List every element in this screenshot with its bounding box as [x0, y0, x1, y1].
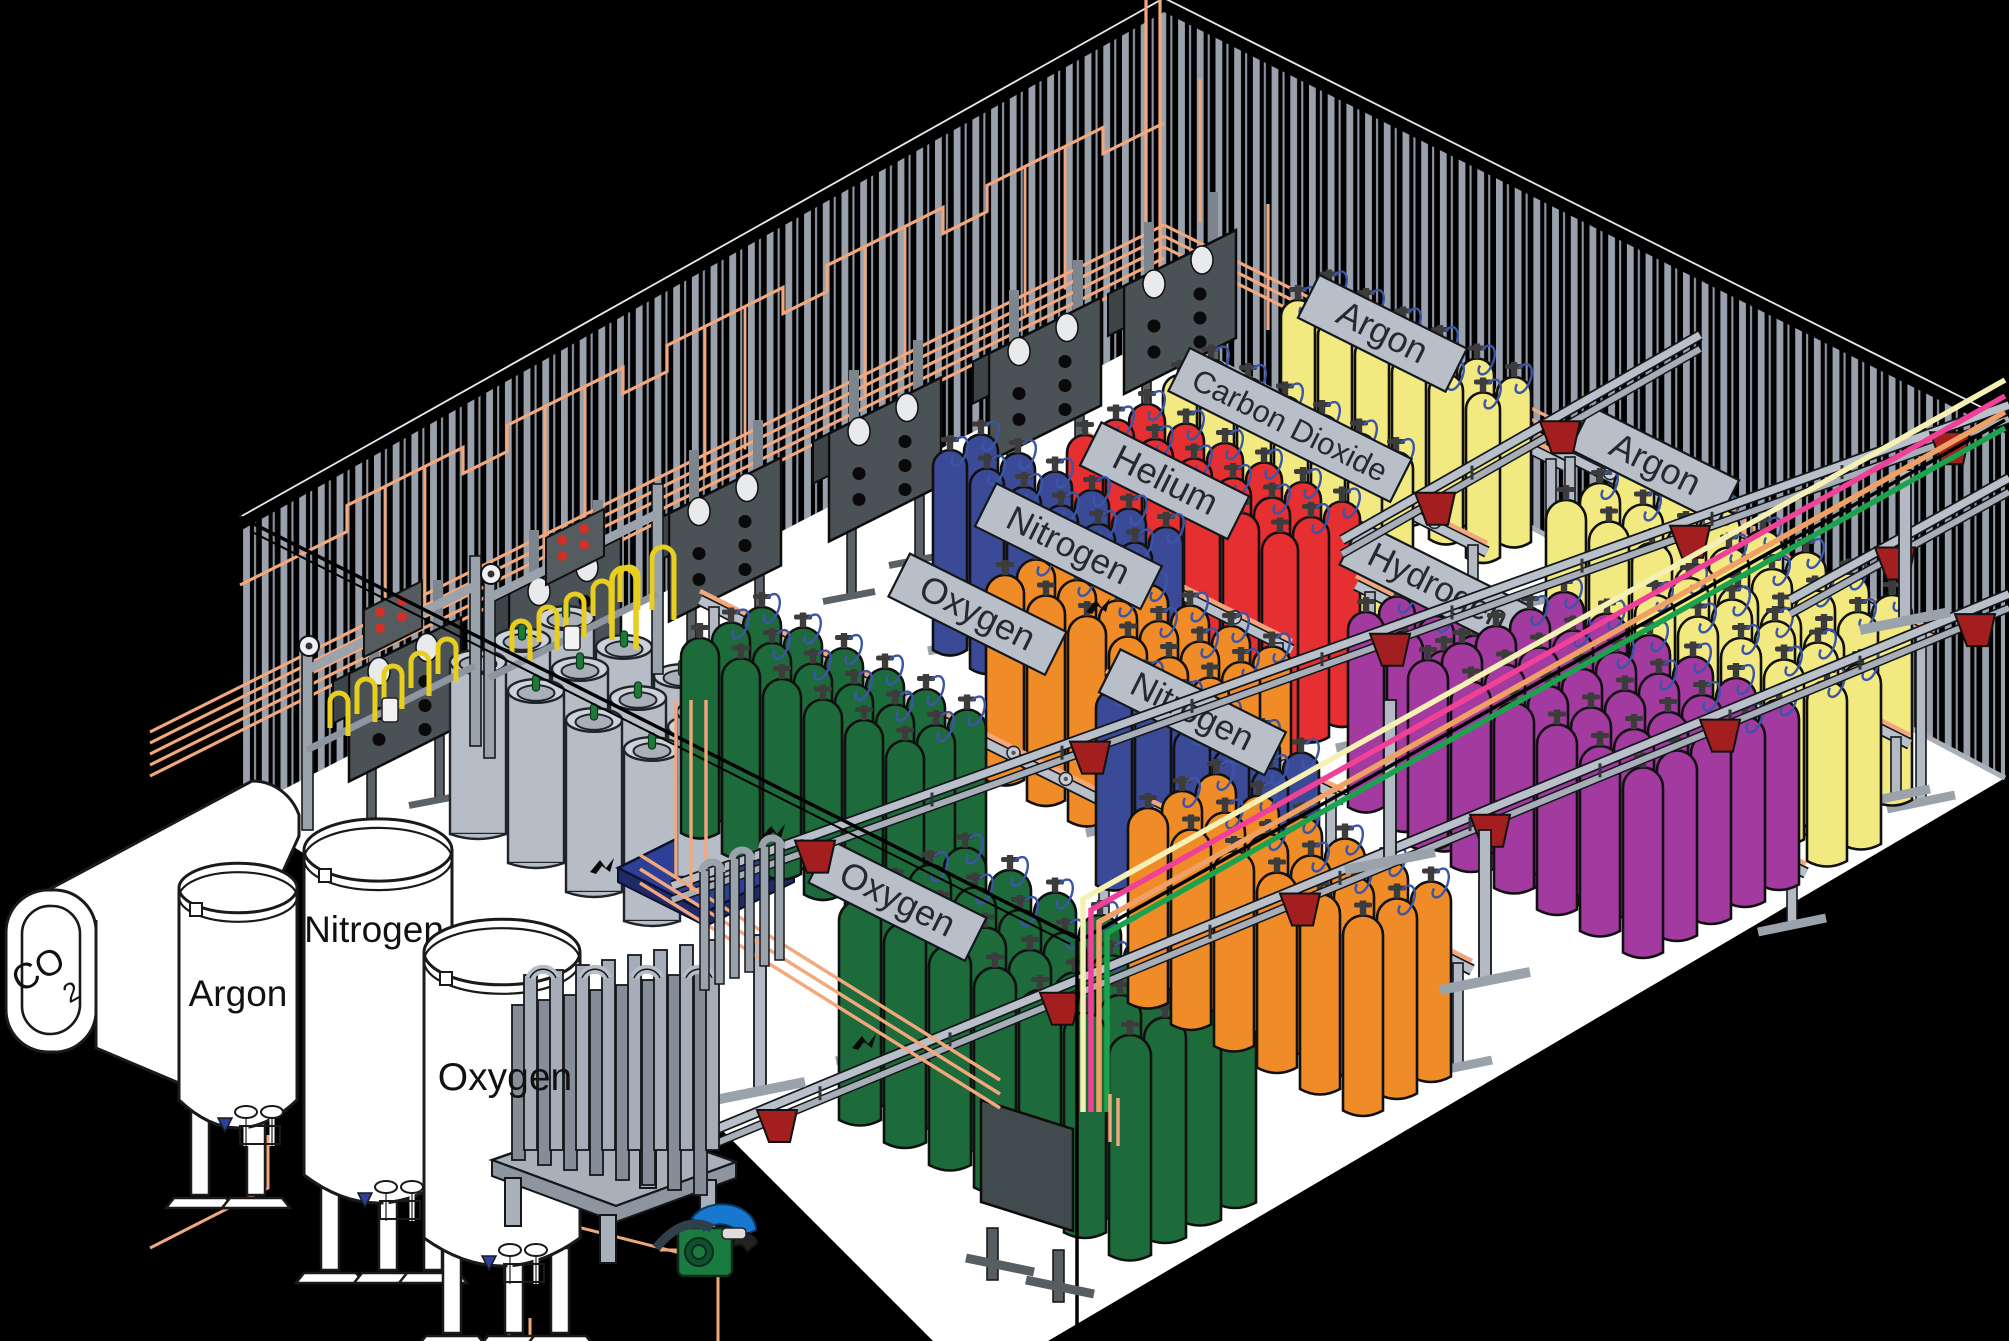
svg-text:Oxygen: Oxygen — [438, 1056, 572, 1099]
svg-text:Argon: Argon — [189, 973, 288, 1014]
svg-text:Nitrogen: Nitrogen — [304, 909, 444, 950]
